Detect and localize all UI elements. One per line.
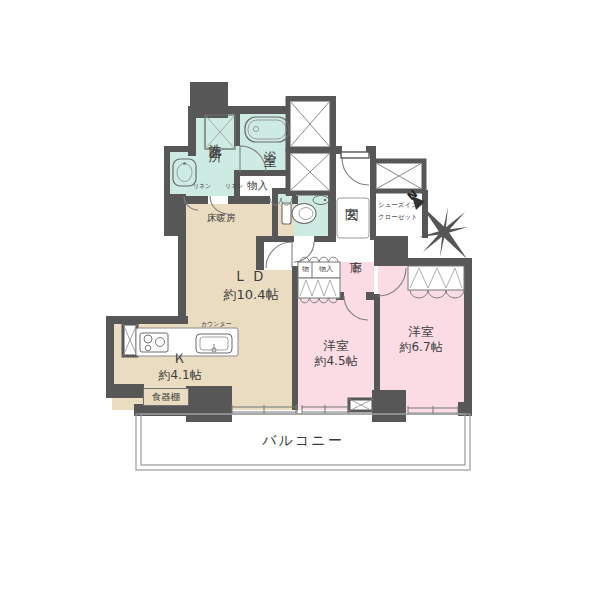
balcony-label: バルコニー [248, 432, 358, 449]
hallway-label: 廊下 [348, 251, 362, 255]
bath-storage-label: 物入 [247, 179, 268, 192]
washroom-label: 洗面所 [207, 133, 223, 142]
ld-door [266, 242, 292, 268]
kitchen-column-icon [123, 324, 137, 356]
south-shaft-icon [349, 399, 373, 411]
bath-door [240, 146, 266, 172]
bedroom-large-size: 約6.7帖 [388, 340, 454, 354]
kitchen-size: 約4.1帖 [150, 368, 210, 382]
plan-symbols: N [0, 0, 614, 613]
linen-left-label: リネン [193, 182, 211, 189]
beam-box-icon [374, 161, 424, 191]
bedroom-small-door [344, 296, 368, 320]
washing-machine-icon [205, 115, 235, 149]
vanity-door [184, 196, 198, 210]
bedroom-small-label: 洋室 [303, 338, 369, 353]
north-arrow-icon: N [405, 187, 468, 259]
shoe-closet-label-line2: クローゼット [378, 214, 418, 222]
floor-plan: N 洗面所 浴室 物入 リネン リネン 玄関 シューズイン クローゼット 廊下 … [0, 0, 614, 613]
hall-storage-small-label: 物 [299, 265, 312, 273]
bedroom-large-label: 洋室 [388, 324, 454, 339]
living-dining-label: ＬＤ [206, 267, 296, 285]
bedroom-small-size: 約4.5帖 [303, 354, 369, 368]
living-dining-size: 約10.4帖 [206, 287, 296, 303]
linen-right-label: リネン [225, 182, 243, 189]
pipe-shaft-icon [288, 99, 332, 193]
entrance-door-leaf [341, 152, 369, 158]
bath-storage-folding-door [270, 198, 292, 205]
entrance-door [342, 158, 369, 185]
hall-storage-large-label: 物入 [313, 265, 339, 273]
window-lines [232, 404, 458, 415]
counter-label: カウンター [201, 320, 232, 327]
bedroom-large-closet-icon [408, 266, 464, 298]
entry-step-line [337, 198, 369, 238]
bath-label: 浴室 [262, 140, 278, 146]
entrance-label: 玄関 [344, 197, 360, 201]
toilet-icon [282, 196, 329, 225]
floor-heating-label: 床暖房 [207, 212, 236, 223]
cupboard-label: 食器棚 [143, 388, 189, 406]
bedroom-large-door [378, 268, 406, 296]
shoe-closet-label-line1: シューズイン [378, 202, 418, 210]
kitchen-label: Ｋ [150, 350, 210, 367]
bathtub-icon [245, 117, 289, 142]
